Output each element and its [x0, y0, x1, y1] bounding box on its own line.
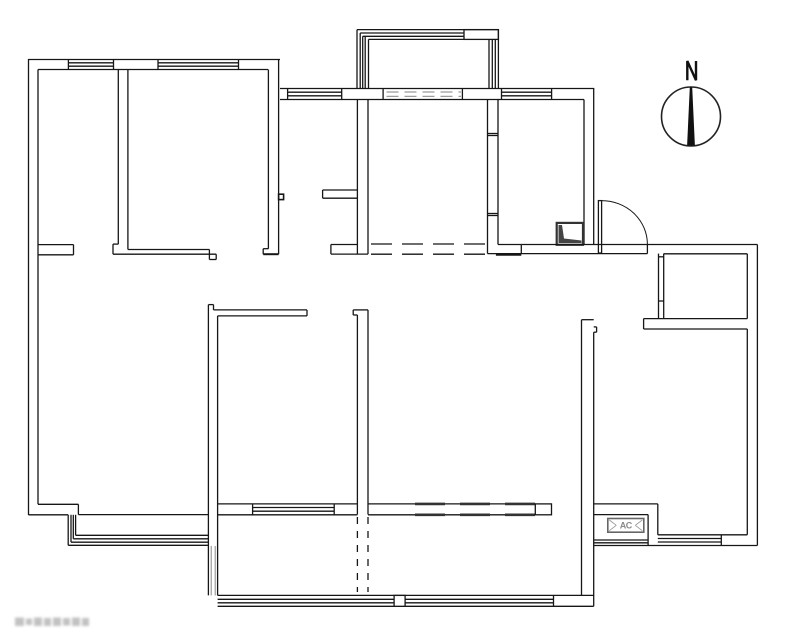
svg-text:AC: AC	[620, 521, 633, 531]
